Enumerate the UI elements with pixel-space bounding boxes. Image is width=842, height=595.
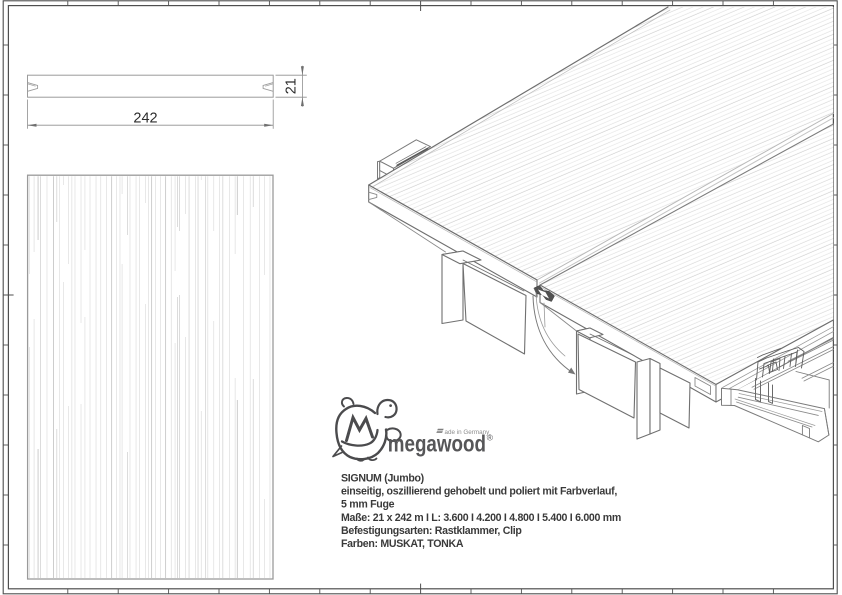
svg-text:ade in Germany: ade in Germany [445,429,491,436]
svg-text:Maße: 21 x 242 m I L: 3.600 I: Maße: 21 x 242 m I L: 3.600 I 4.200 I 4.… [341,512,621,524]
svg-text:21: 21 [284,78,300,94]
svg-text:242: 242 [133,111,157,127]
svg-text:5 mm Fuge: 5 mm Fuge [341,499,395,511]
svg-text:einseitig, oszillierend gehobe: einseitig, oszillierend gehobelt und pol… [341,486,617,498]
svg-text:SIGNUM (Jumbo): SIGNUM (Jumbo) [341,473,424,485]
svg-text:Farben: MUSKAT, TONKA: Farben: MUSKAT, TONKA [341,538,464,550]
svg-text:Befestigungsarten: Rastklammer: Befestigungsarten: Rastklammer, Clip [341,525,522,537]
